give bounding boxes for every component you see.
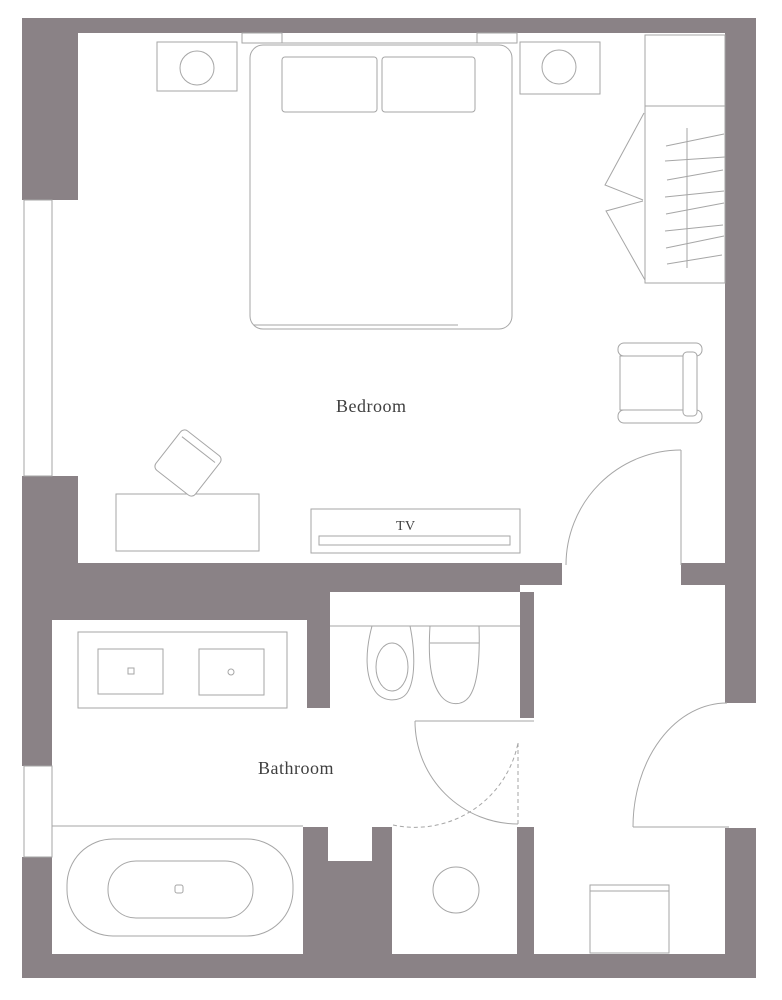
entry-bench	[590, 885, 669, 953]
bathroom-label: Bathroom	[258, 758, 334, 778]
wall-vanity-pier	[307, 592, 330, 708]
bidet	[429, 626, 479, 704]
wall-left-upper	[22, 18, 78, 200]
toilet	[367, 626, 414, 700]
bedroom-window	[24, 200, 52, 476]
bathroom-window	[24, 766, 52, 857]
wall-toilet-strip	[310, 585, 520, 592]
sink-right	[199, 649, 264, 695]
vanity	[78, 632, 287, 708]
bedroom-door	[566, 450, 681, 565]
entry-door	[633, 703, 729, 827]
sink-left	[98, 649, 163, 694]
bifold-door-icon	[605, 113, 645, 280]
wc-fixtures	[330, 626, 520, 704]
nightstand-left	[157, 42, 237, 91]
closet	[605, 35, 725, 283]
shower-drain-icon	[433, 867, 479, 913]
tv-label: TV	[396, 519, 416, 534]
tv-console: TV	[311, 509, 520, 553]
wall-tub-shower-base	[303, 861, 392, 954]
wall-toilet-corridor	[520, 592, 534, 718]
wall-bedroom-bathroom	[22, 563, 562, 585]
floor-plan-canvas: TV	[0, 0, 782, 1000]
wall-shower-corridor	[517, 827, 534, 954]
tv-screen	[319, 536, 510, 545]
wall-tub-shower-b	[372, 827, 392, 861]
bathtub	[52, 826, 303, 936]
wall-left-mid	[22, 476, 78, 563]
desk-chair	[153, 428, 223, 498]
shower-pivot-door	[393, 721, 534, 827]
bedroom-label: Bedroom	[336, 396, 407, 416]
pillow-right	[382, 57, 475, 112]
wall-bottom	[22, 954, 756, 978]
headboard	[242, 33, 517, 43]
armchair	[618, 343, 702, 423]
pillow-left	[282, 57, 377, 112]
wall-right-lower	[725, 828, 756, 978]
wall-doorway-right	[681, 563, 725, 585]
desk	[116, 494, 259, 551]
closet-shelf	[645, 35, 725, 106]
wall-right-upper	[725, 18, 756, 703]
wall-top	[22, 18, 756, 33]
bedroom-furniture: TV	[116, 33, 725, 553]
floor-plan: TV	[0, 0, 782, 1000]
wall-tub-shower-a	[303, 827, 328, 861]
wall-vanity-thick	[22, 585, 310, 620]
